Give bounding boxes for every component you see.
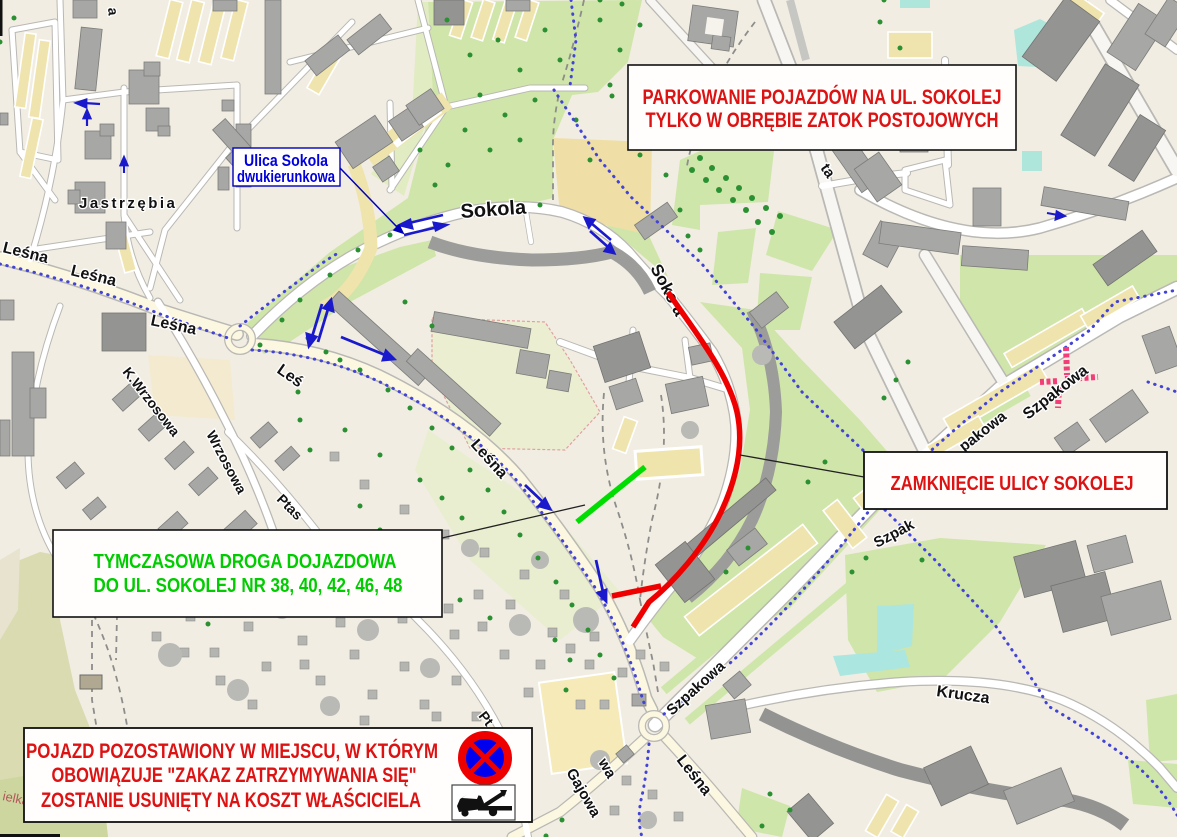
svg-text:a: a	[105, 7, 122, 16]
svg-text:Jastrzębia: Jastrzębia	[79, 195, 177, 212]
svg-text:OBOWIĄZUJE "ZAKAZ ZATRZYMYWANI: OBOWIĄZUJE "ZAKAZ ZATRZYMYWANIA SIĘ"	[52, 764, 417, 787]
svg-text:PARKOWANIE POJAZDÓW NA UL. SOK: PARKOWANIE POJAZDÓW NA UL. SOKOLEJ	[643, 85, 1002, 109]
svg-text:ZAMKNIĘCIE ULICY SOKOLEJ: ZAMKNIĘCIE ULICY SOKOLEJ	[891, 472, 1134, 495]
svg-text:POJAZD POZOSTAWIONY W MIEJSCU,: POJAZD POZOSTAWIONY W MIEJSCU, W KTÓRYM	[26, 739, 438, 763]
svg-text:TYMCZASOWA DROGA DOJAZDOWA: TYMCZASOWA DROGA DOJAZDOWA	[94, 550, 397, 573]
svg-text:ZOSTANIE USUNIĘTY NA KOSZT WŁA: ZOSTANIE USUNIĘTY NA KOSZT WŁAŚCICIELA	[41, 788, 421, 812]
svg-text:DO UL. SOKOLEJ NR 38, 40, 42,: DO UL. SOKOLEJ NR 38, 40, 42, 46, 48	[94, 574, 403, 597]
svg-text:TYLKO W OBRĘBIE ZATOK POSTOJOW: TYLKO W OBRĘBIE ZATOK POSTOJOWYCH	[646, 109, 999, 132]
svg-text:dwukierunkowa: dwukierunkowa	[237, 168, 336, 186]
svg-text:Sokola: Sokola	[460, 196, 528, 223]
